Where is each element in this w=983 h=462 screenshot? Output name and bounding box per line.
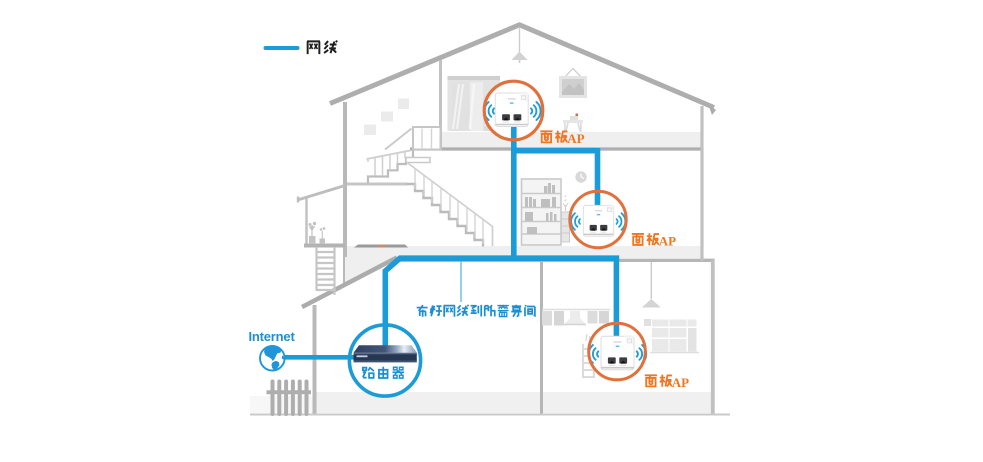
svg-text:AP: AP [567, 131, 584, 146]
svg-text:AP: AP [659, 233, 676, 248]
svg-text:Internet: Internet [249, 329, 296, 344]
svg-text:AP: AP [672, 375, 689, 390]
